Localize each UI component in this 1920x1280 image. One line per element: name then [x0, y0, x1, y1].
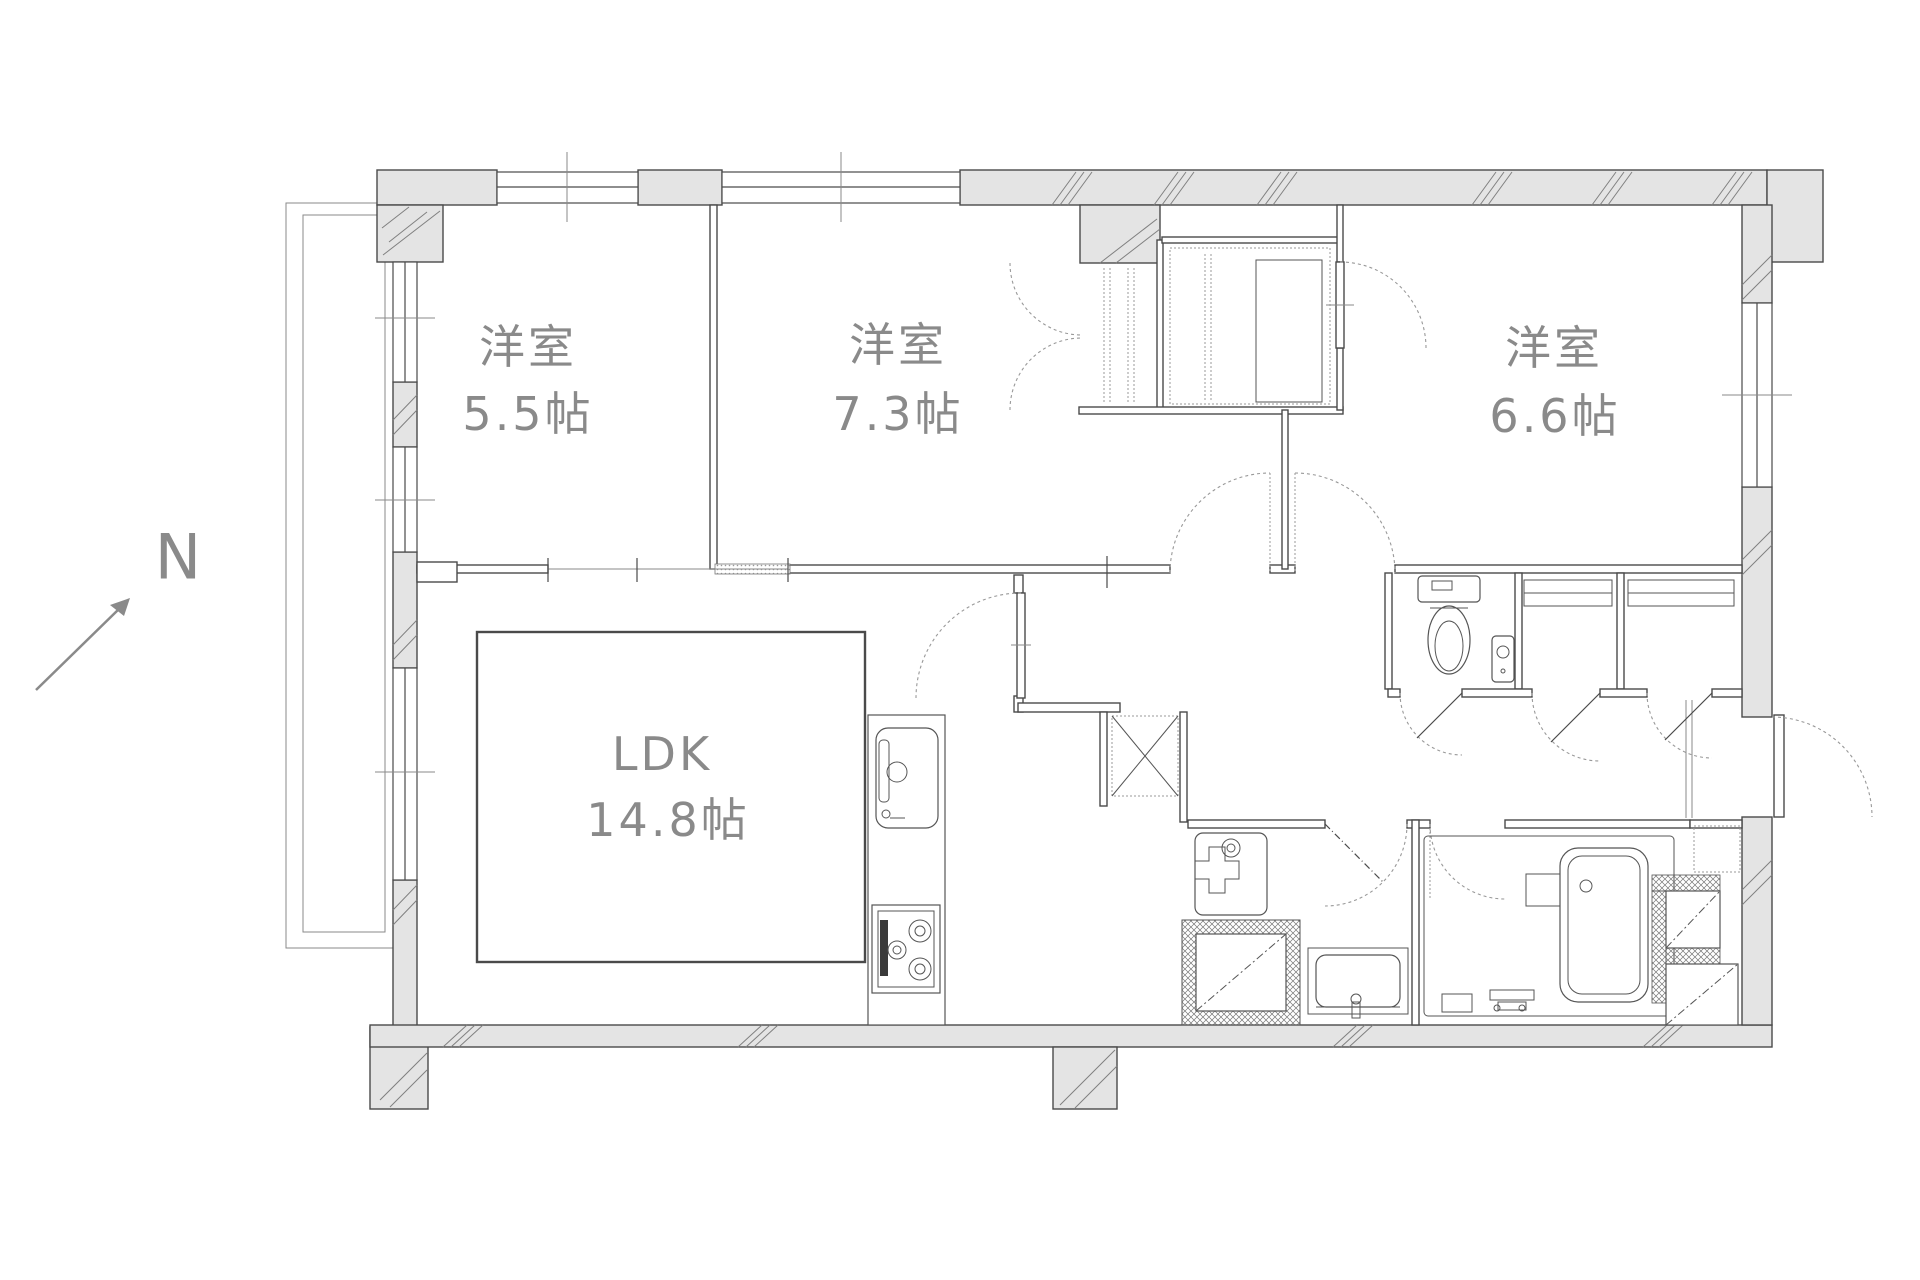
- pipe-space-bath-side: [1652, 826, 1740, 1025]
- ldk-door: [916, 593, 1031, 698]
- room1-opening: [548, 558, 790, 582]
- balcony: [286, 203, 398, 948]
- ldk-name: LDK: [612, 731, 712, 777]
- room2-size: 7.3帖: [832, 391, 963, 437]
- storage2-door: [1647, 693, 1712, 758]
- vanity-basin: [1308, 948, 1408, 1018]
- window-left-2: [375, 447, 435, 552]
- room3-name: 洋室: [1505, 325, 1603, 371]
- window-room1-top: [497, 152, 638, 222]
- toilet-hand-basin: [1492, 636, 1514, 682]
- bathroom: [1424, 836, 1674, 1016]
- toilet-door: [1400, 693, 1462, 755]
- bathtub: [1560, 848, 1648, 1002]
- toilet-fixture: [1418, 576, 1480, 674]
- fixtures: [868, 248, 1740, 1025]
- shower-mixer: [1442, 990, 1534, 1012]
- compass-north-label: N: [155, 521, 201, 594]
- floor-plan-drawing: [0, 0, 1920, 1280]
- bathroom-door: [1430, 824, 1505, 899]
- floor-plan: 洋室 5.5帖 洋室 7.3帖 洋室 6.6帖 LDK 14.8帖 N: [0, 0, 1920, 1280]
- compass-north-arrow: [36, 598, 130, 690]
- balcony-door: [375, 668, 435, 880]
- ldk-size: 14.8帖: [586, 797, 749, 843]
- window-room3-right: [1722, 303, 1792, 487]
- closet2-door: [1326, 262, 1426, 348]
- pipe-space-storage: [1182, 920, 1300, 1025]
- refrigerator-space: [1112, 716, 1178, 796]
- kitchen-sink: [876, 728, 938, 828]
- room3-size: 6.6帖: [1489, 393, 1620, 439]
- window-left-1: [375, 262, 435, 382]
- washing-machine-pan: [1195, 833, 1267, 915]
- gas-stove: [872, 905, 940, 993]
- washroom-door: [1325, 824, 1407, 906]
- closet1-bifold-doors: [1010, 263, 1082, 410]
- room1-size: 5.5帖: [462, 391, 593, 437]
- closet2-interior: [1170, 248, 1330, 404]
- window-room2-top: [722, 152, 960, 222]
- entrance-door: [1772, 715, 1872, 817]
- room2-name: 洋室: [849, 322, 947, 368]
- closet1-interior: [1104, 268, 1134, 403]
- storage1-door: [1532, 693, 1600, 761]
- storage-shelf-2: [1628, 580, 1734, 606]
- room1-name: 洋室: [479, 324, 577, 370]
- doors: [916, 262, 1872, 906]
- storage-shelf-1: [1524, 580, 1612, 606]
- room3-door: [1295, 473, 1395, 573]
- room2-door: [1170, 473, 1270, 573]
